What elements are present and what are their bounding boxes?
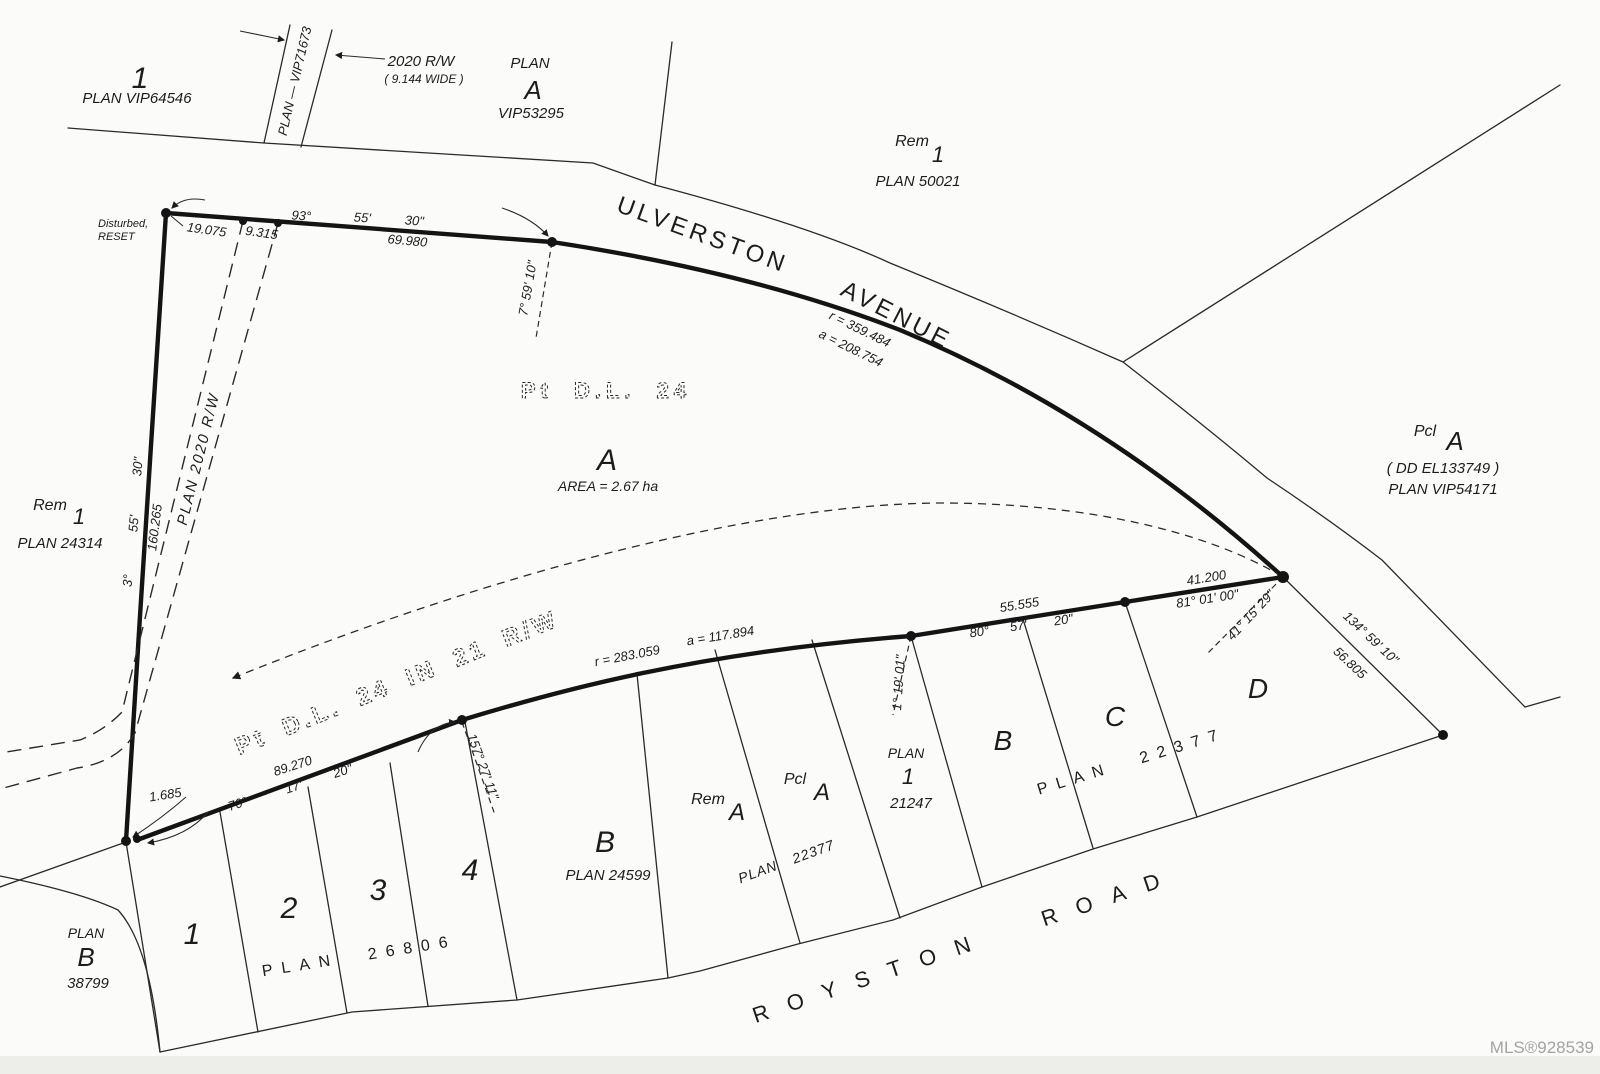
label-38799-lot: B (77, 942, 94, 972)
label-lot-3: 3 (370, 874, 387, 907)
label-pcla-54171-plan: PLAN VIP54171 (1388, 481, 1497, 498)
label-vip53295-lot: A (522, 75, 541, 105)
road-names: ULVERSTON AVENUE ROYSTON ROAD (613, 191, 1182, 1027)
lotc-lotd-divider (1125, 602, 1197, 817)
label-plan-24599: PLAN 24599 (565, 867, 651, 884)
dim-9315: 9.315 (244, 223, 279, 242)
label-vip64546-plan: PLAN VIP64546 (82, 90, 192, 107)
label-vip53295-number: VIP53295 (498, 105, 565, 122)
label-vip53295-plan-word: PLAN (510, 55, 549, 72)
dim-leader-1-19-01: 1° 19' 01" (889, 653, 908, 711)
dim-top-min: 55' (353, 209, 371, 225)
dim-19075-tick (171, 216, 183, 226)
lot3-lot4-divider (390, 763, 428, 1006)
lot1-lot2-divider (220, 812, 258, 1032)
north-road-edge-west (68, 128, 655, 185)
top-curve-point-arrow (502, 208, 548, 236)
label-rem1-50021-lot: 1 (932, 142, 944, 167)
monument-sw-1 (121, 836, 131, 846)
lotb-rema-divider (637, 674, 668, 978)
dim-leader-157-27-11: 157° 27' 11" (464, 731, 502, 802)
lot2-lot3-divider (308, 787, 347, 1013)
rw-strip-arrow-right (336, 55, 385, 59)
21247-lotb-divider (911, 636, 982, 887)
label-lot-2: 2 (280, 892, 298, 925)
monument-south-curve (457, 715, 467, 725)
label-rem1-50021-plan: PLAN 50021 (875, 173, 960, 190)
survey-plan-page: 1 PLAN VIP64546 PLAN — VIP71673 2020 R/W… (0, 0, 1600, 1074)
label-38799-plan-word: PLAN (68, 925, 105, 941)
label-plan-22377-small: PLAN 22377 (736, 836, 837, 886)
rw-strip-arrow-left (240, 31, 284, 40)
rw2020-dashed-west (0, 221, 243, 753)
label-rem1-24314-lot: 1 (73, 504, 85, 529)
label-subject-lot-a: A (595, 444, 617, 477)
nw-corner-arrow (172, 199, 205, 208)
monument-top-2 (274, 219, 282, 227)
label-21247-lot: 1 (902, 764, 914, 789)
label-21247-plan-word: PLAN (888, 745, 925, 761)
dim-curve2-r: r = 283.059 (593, 642, 661, 669)
dim-19075: 19.075 (186, 219, 228, 239)
thin-boundary-lines (0, 25, 1560, 1052)
label-pcla-54171-lot: A (1444, 426, 1463, 456)
mls-watermark: MLS®928539 (1490, 1038, 1594, 1057)
label-lot-4: 4 (462, 854, 479, 887)
dim-55555: 55.555 (998, 594, 1040, 615)
dim-west-deg: 3° (120, 574, 136, 588)
note-disturbed-line1: Disturbed, (98, 218, 148, 230)
label-pt-dl24-in-21-rw: Pt D.L. 24 IN 21 R/W (231, 606, 563, 761)
dim-mid-min: 57' (1009, 617, 1029, 635)
monument-55555 (906, 631, 916, 641)
monument-se-road (1438, 730, 1448, 740)
label-plan-22377-spread: PLAN 22377 (1035, 725, 1228, 799)
boundary-ulverston-curve (552, 242, 1283, 577)
label-rw2020-line2: ( 9.144 WIDE ) (384, 72, 463, 86)
label-lot-c-22377: C (1105, 701, 1126, 732)
dim-west-sec: 30" (129, 455, 146, 477)
notes: Disturbed, RESET (98, 218, 148, 243)
monument-east (1277, 571, 1289, 583)
rema-pcla-divider (715, 650, 800, 943)
dim-leader-7-59-10: 7° 59' 10" (515, 258, 540, 317)
monument-top-curve (547, 237, 557, 247)
label-pcla-54171-dd: ( DD EL133749 ) (1387, 460, 1500, 477)
note-disturbed-line2: RESET (98, 231, 136, 243)
lot-d-east-line (1283, 577, 1443, 735)
lot1-west-line (126, 842, 160, 1052)
dim-sw-deg: 70° (226, 794, 249, 814)
dim-curve2-a: a = 117.894 (686, 623, 756, 648)
dim-69980: 69.980 (387, 231, 429, 249)
label-pcla-54171-pcl: Pcl (1414, 423, 1437, 440)
ulverston-north-edge (655, 185, 1560, 707)
label-lot-b-22377: B (994, 725, 1013, 756)
rem1-pcla-divider (1123, 85, 1560, 362)
subject-parcel-boundary (126, 213, 1283, 841)
dim-top-deg: 93° (291, 207, 312, 223)
label-21247-number: 21247 (889, 795, 932, 812)
bearing-leader-7-59-10 (536, 242, 552, 338)
label-plan-26806: PLAN 26806 (261, 933, 458, 981)
label-pcl-a-pcl: Pcl (784, 771, 807, 788)
label-rem-a-lot: A (727, 799, 745, 826)
dim-56805: 56.805 (1330, 644, 1370, 683)
label-pt-dl-24: Pt D.L. 24 (521, 378, 691, 403)
label-rem-a-rem: Rem (691, 791, 725, 808)
survey-plan-drawing: 1 PLAN VIP64546 PLAN — VIP71673 2020 R/W… (0, 0, 1600, 1074)
bottom-strip (0, 1056, 1600, 1074)
label-pcl-a-lot: A (812, 779, 830, 806)
dim-west-min: 55' (125, 514, 141, 533)
monument-41200 (1120, 597, 1130, 607)
dim-mid-sec: 20" (1052, 610, 1076, 628)
label-rem1-24314-plan: PLAN 24314 (17, 535, 102, 552)
plan-a-rem1-divider (655, 42, 672, 185)
label-lot-d-22377: D (1248, 673, 1268, 704)
label-lot-1: 1 (184, 918, 201, 951)
dim-mid-deg: 80° (968, 623, 990, 641)
label-subject-area: AREA = 2.67 ha (557, 478, 658, 494)
label-rem1-24314-rem: Rem (33, 497, 67, 514)
survey-monuments (121, 208, 1448, 846)
dim-sw-sec: 20" (330, 760, 355, 781)
label-rw2020-line1: 2020 R/W (387, 53, 457, 70)
lotb-lotc-divider (1023, 619, 1093, 848)
monument-nw (161, 208, 171, 218)
parcel-labels: 1 PLAN VIP64546 PLAN — VIP71673 2020 R/W… (17, 24, 1499, 992)
label-ulverston: ULVERSTON (613, 191, 792, 278)
label-38799-number: 38799 (67, 975, 109, 992)
label-royston-road: ROYSTON ROAD (749, 862, 1182, 1028)
monument-sw-2 (133, 835, 141, 843)
dim-1685: 1.685 (148, 784, 183, 804)
label-lot-b-24599: B (595, 826, 615, 859)
label-rem1-50021-rem: Rem (895, 133, 929, 150)
dim-top-sec: 30" (404, 212, 425, 228)
